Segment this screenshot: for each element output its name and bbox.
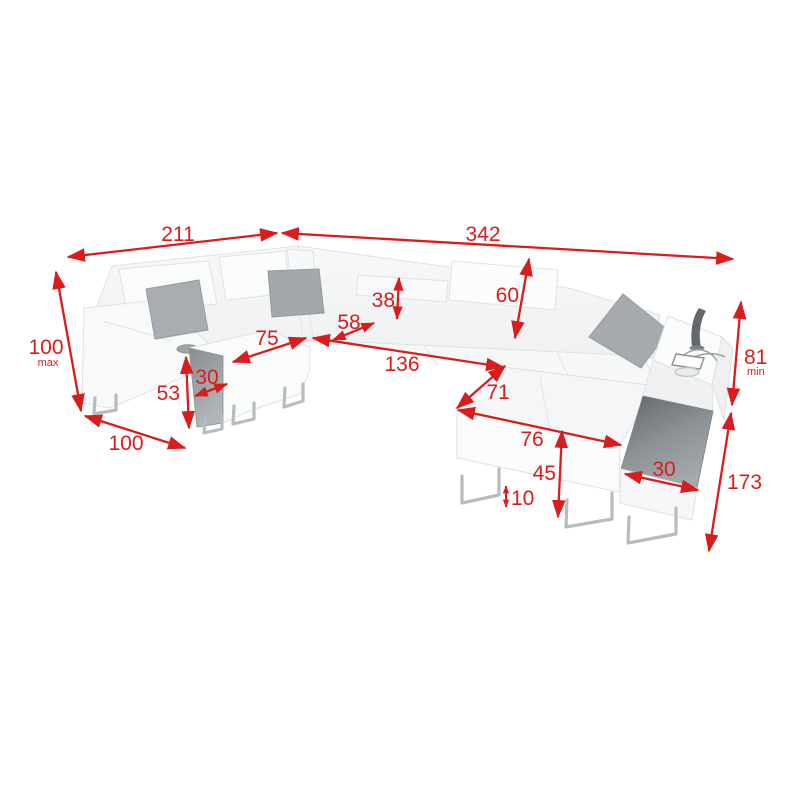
dimension-value: 136 bbox=[384, 353, 419, 376]
dimension-value: 211 bbox=[161, 223, 194, 246]
dimension-value: 100 bbox=[108, 432, 143, 455]
dimension-value: 342 bbox=[465, 223, 500, 246]
shelf-cupholder bbox=[675, 368, 699, 377]
dimension-value: 30 bbox=[195, 366, 218, 389]
dimension-value: 10 bbox=[511, 487, 534, 510]
dimension-height-right: 81 min bbox=[732, 302, 767, 405]
dimension-suffix: min bbox=[747, 366, 765, 378]
cushion-pillow bbox=[146, 280, 208, 339]
dimension-value: 60 bbox=[496, 284, 519, 307]
dimension-value: 173 bbox=[727, 471, 762, 494]
dimension-value: 45 bbox=[533, 462, 556, 485]
cushion-pillow bbox=[268, 269, 324, 317]
dimension-value: 38 bbox=[372, 289, 395, 312]
metal-leg bbox=[566, 493, 612, 527]
dimension-value: 76 bbox=[520, 428, 543, 451]
dimension-value: 58 bbox=[337, 311, 360, 334]
metal-leg bbox=[462, 469, 499, 503]
dimension-leg-clearance: 10 bbox=[506, 486, 534, 510]
sofa-dimension-diagram: 211 342 100 max 100 53 30 75 bbox=[0, 0, 800, 800]
dimension-height-overall: 100 max bbox=[28, 272, 81, 411]
dimension-side-depth-total: 173 bbox=[709, 413, 762, 551]
dimension-value: 53 bbox=[157, 382, 180, 405]
dimension-value: 75 bbox=[255, 327, 278, 350]
dimension-suffix: max bbox=[38, 357, 59, 369]
dimension-value: 100 bbox=[28, 336, 63, 359]
dimension-left-arm-depth: 100 bbox=[85, 416, 185, 455]
dimension-value: 30 bbox=[652, 458, 675, 481]
dimension-diagram-page: 211 342 100 max 100 53 30 75 bbox=[0, 0, 800, 800]
dimension-value: 71 bbox=[486, 381, 509, 404]
